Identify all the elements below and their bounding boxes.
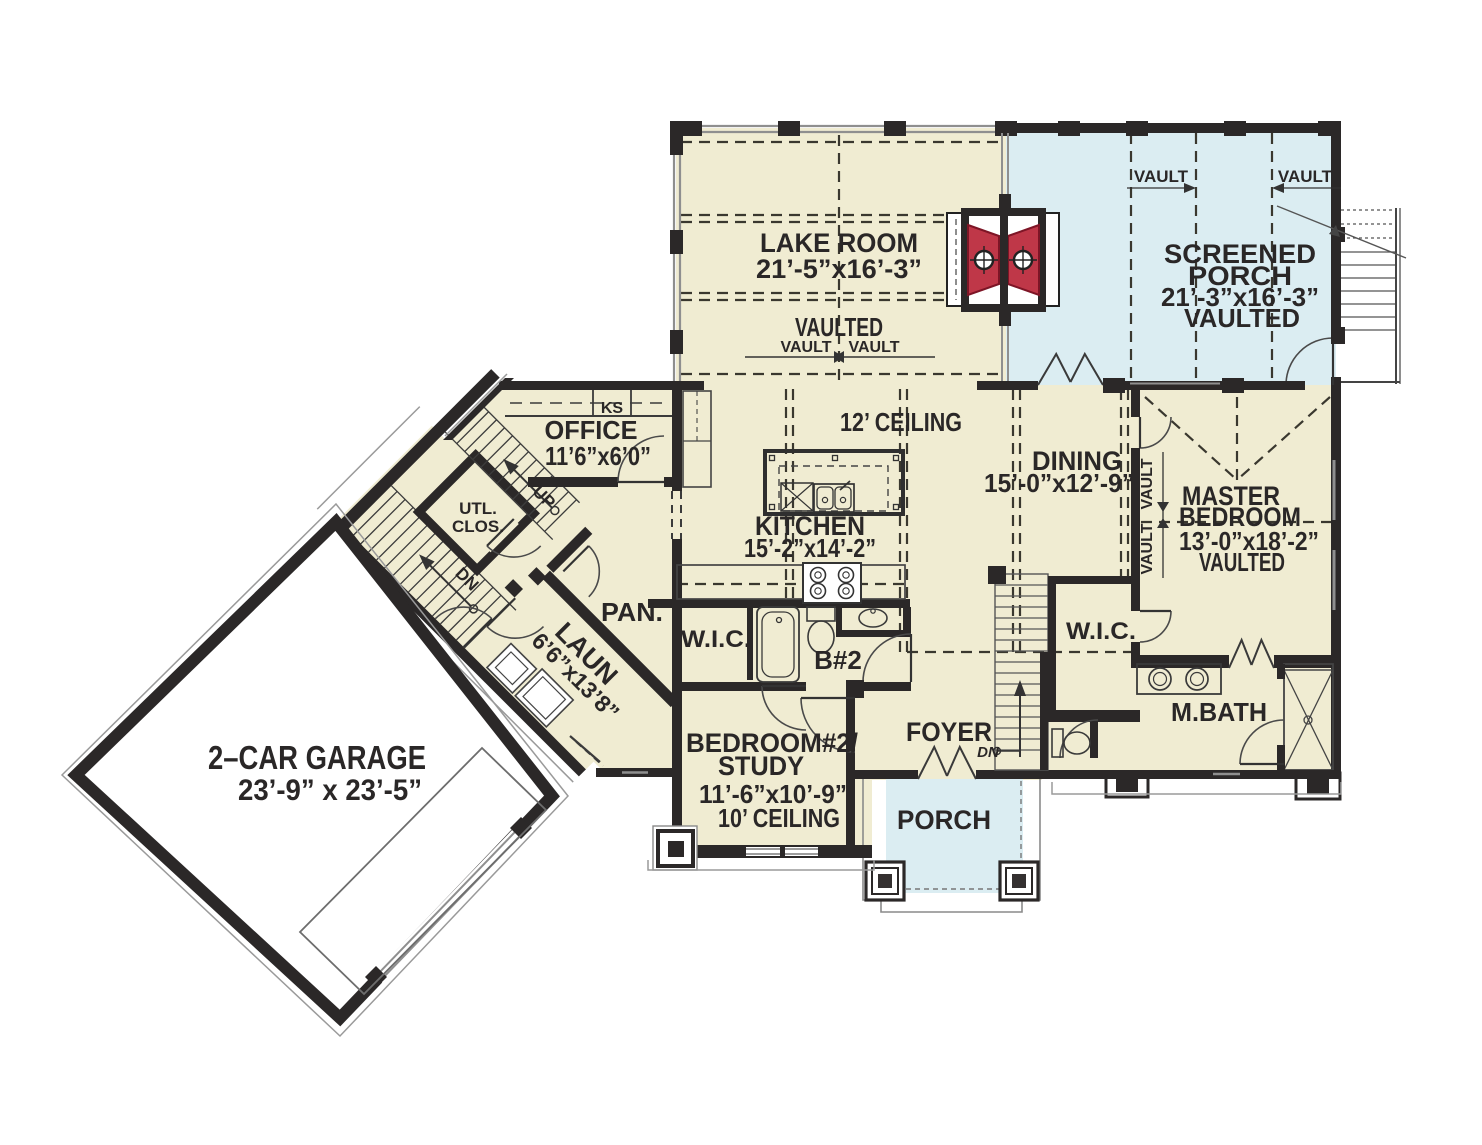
svg-text:M.BATH: M.BATH	[1171, 697, 1267, 727]
svg-text:PORCH: PORCH	[897, 805, 991, 835]
svg-text:VAULT: VAULT	[781, 339, 832, 356]
svg-text:VAULT: VAULT	[1134, 167, 1189, 186]
svg-text:VAULT: VAULT	[849, 339, 900, 356]
svg-text:VAULT: VAULT	[1278, 167, 1333, 186]
svg-text:CLOS.: CLOS.	[452, 517, 504, 536]
svg-text:10’ CEILING: 10’ CEILING	[718, 803, 840, 833]
svg-text:UTL.: UTL.	[459, 499, 497, 518]
svg-text:VAULTED: VAULTED	[1199, 547, 1285, 577]
svg-text:B#2: B#2	[814, 645, 862, 675]
svg-text:W.I.C.: W.I.C.	[1066, 618, 1136, 645]
svg-text:VAULT: VAULT	[1139, 458, 1156, 509]
svg-text:2–CAR GARAGE: 2–CAR GARAGE	[208, 739, 426, 776]
svg-text:PAN.: PAN.	[601, 597, 663, 627]
svg-text:23’-9” x 23’-5”: 23’-9” x 23’-5”	[238, 774, 422, 807]
svg-text:21’-5”x16’-3”: 21’-5”x16’-3”	[756, 254, 922, 284]
svg-text:VAULT: VAULT	[1139, 523, 1156, 574]
svg-text:VAULTED: VAULTED	[1184, 303, 1300, 333]
svg-text:STUDY: STUDY	[718, 751, 804, 781]
svg-text:DN: DN	[977, 744, 1000, 761]
svg-text:12’ CEILING: 12’ CEILING	[840, 407, 962, 437]
svg-text:W.I.C.: W.I.C.	[681, 626, 751, 653]
svg-text:VAULTED: VAULTED	[795, 312, 883, 342]
svg-text:15’-0”x12’-9”: 15’-0”x12’-9”	[984, 468, 1134, 498]
svg-text:KS: KS	[601, 400, 624, 417]
svg-text:11’6”x6’0”: 11’6”x6’0”	[545, 441, 651, 471]
svg-text:15’-2”x14’-2”: 15’-2”x14’-2”	[744, 533, 876, 563]
svg-text:FOYER: FOYER	[906, 717, 992, 747]
